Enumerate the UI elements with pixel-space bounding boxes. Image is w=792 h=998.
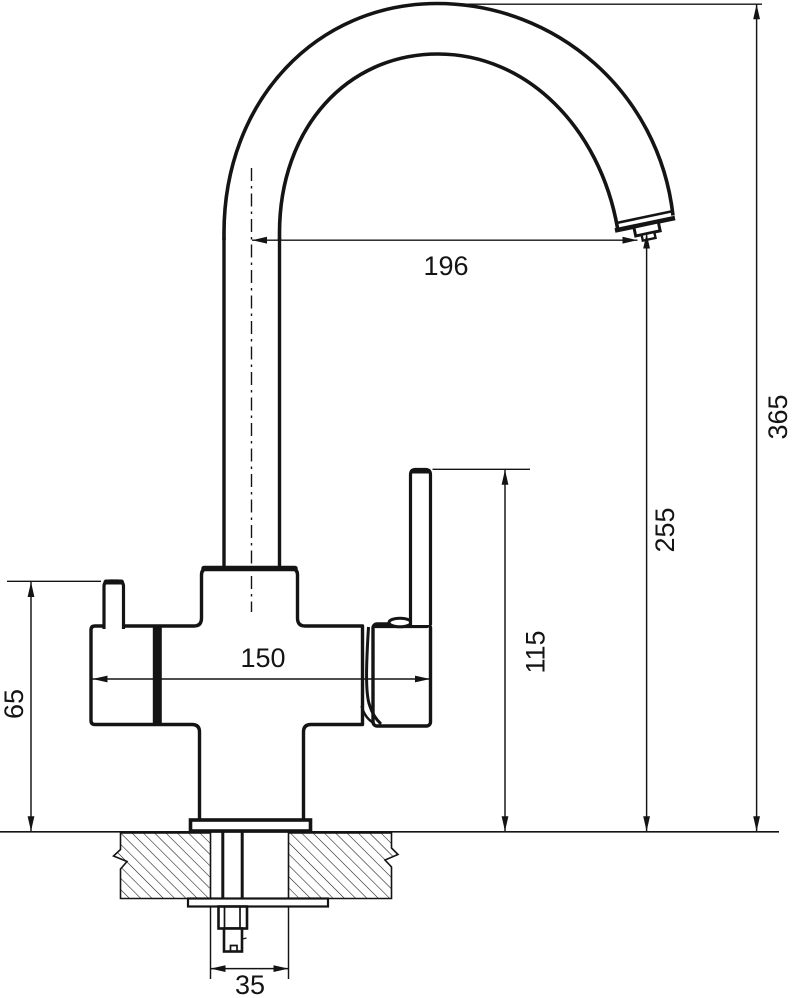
dimension-35-label: 35 [235,970,265,998]
dimension-150-label: 150 [240,643,285,673]
spout-inner-arc [280,54,618,240]
lever-handle [411,470,431,626]
left-cap-band [153,626,162,725]
dimension-65: 65 [0,582,34,831]
dimension-365-label: 365 [763,394,792,439]
body-cross-outline [91,569,363,821]
faucet-dimension-drawing: 196 365 255 115 65 [0,0,792,998]
dimension-196-label: 196 [423,251,468,281]
dimension-115: 115 [502,470,551,832]
countertop-section [0,831,779,952]
dimension-365: 365 [753,4,792,831]
threaded-stud [224,929,247,952]
mounting-washer [188,899,328,907]
mounting-nut [219,907,248,929]
faucet-body [91,4,675,832]
countertop-hatch-right [289,833,399,899]
dimension-65-label: 65 [0,689,29,719]
spout-outer-arc [224,4,673,241]
dimension-196: 196 [252,237,638,281]
dimension-255-label: 255 [650,507,680,552]
lever-pivot-dome [389,618,411,627]
right-cap [373,624,431,726]
dimension-255: 255 [643,234,680,832]
base-flange [191,820,311,831]
dimension-115-label: 115 [521,630,551,673]
left-knob [104,581,124,629]
dimensions: 196 365 255 115 65 [0,4,792,998]
drawing-canvas: 196 365 255 115 65 [0,0,792,998]
dimension-35: 35 [211,965,289,998]
countertop-hatch-left [114,833,211,899]
